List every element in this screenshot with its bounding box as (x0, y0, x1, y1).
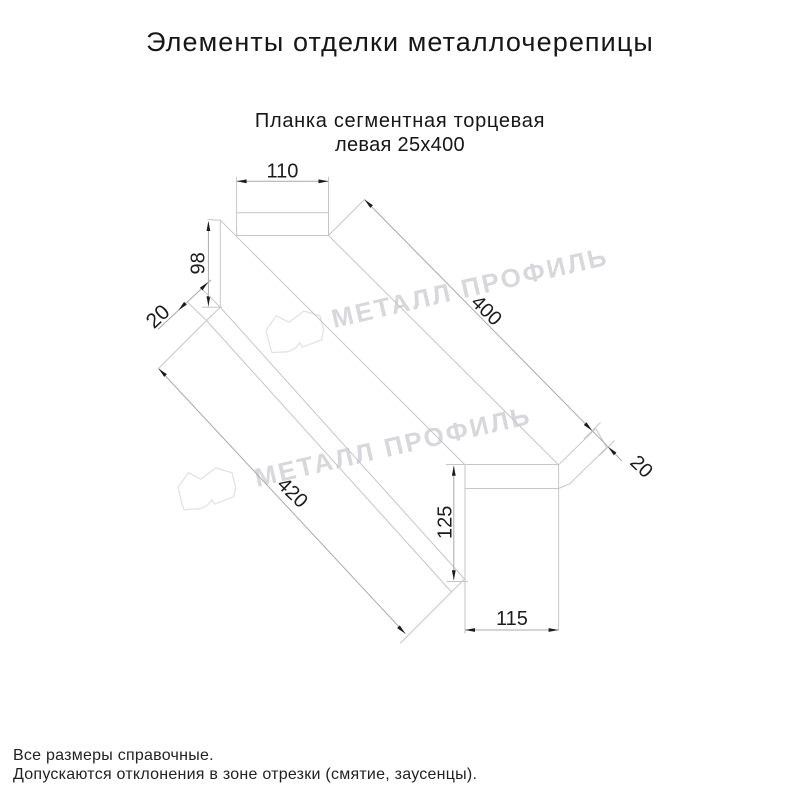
svg-text:20: 20 (142, 300, 175, 333)
svg-text:110: 110 (267, 161, 299, 183)
svg-text:115: 115 (496, 608, 528, 630)
svg-text:20: 20 (626, 451, 657, 482)
svg-text:98: 98 (187, 252, 209, 274)
svg-text:МЕТАЛЛ ПРОФИЛЬ: МЕТАЛЛ ПРОФИЛЬ (329, 241, 612, 334)
svg-text:125: 125 (434, 506, 456, 539)
